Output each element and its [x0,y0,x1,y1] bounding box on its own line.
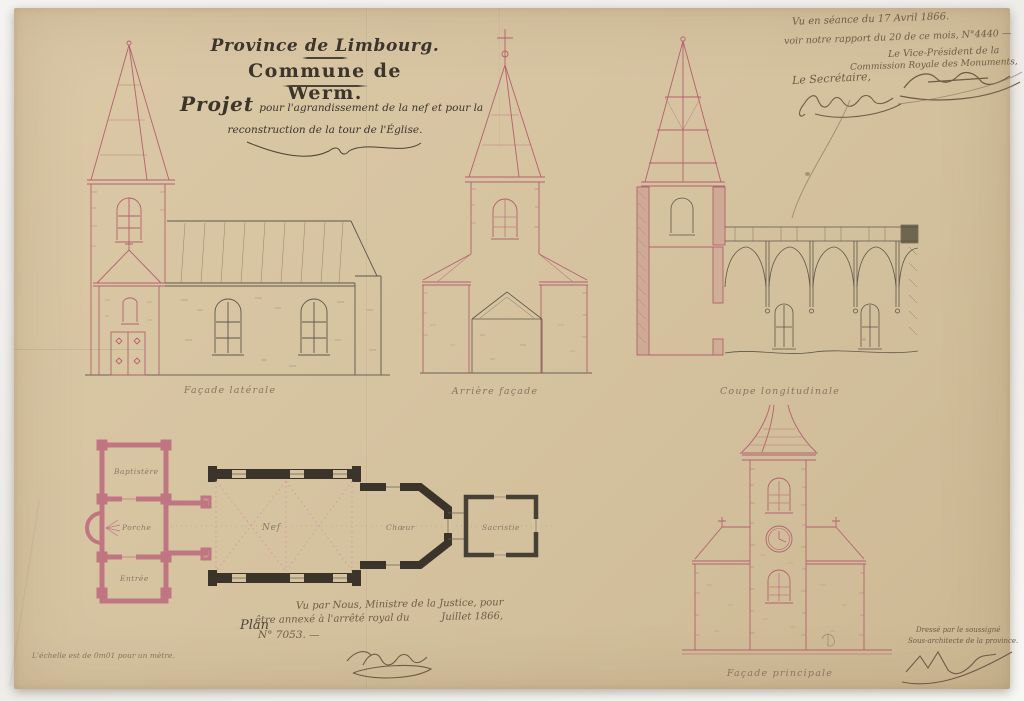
draftsman-signature [900,646,1015,692]
facade-principale-drawing [670,405,905,660]
floor-plan-drawing: Baptistère Porche Entrée Nef Chœur Sacri… [90,435,560,615]
coupe-longitudinale-drawing [635,35,920,385]
draftsman-note-line2: Sous-architecte de la province. [908,637,1018,645]
caption-facade-principale: Façade principale [700,668,860,679]
facade-laterale-drawing [85,40,395,380]
draftsman-note-line1: Dressé par le soussigné [916,626,1000,634]
plan-room-label-entree: Entrée [119,574,149,583]
plan-room-label-sacristie: Sacristie [482,523,520,532]
caption-facade-laterale: Façade latérale [150,385,310,396]
minister-note-line3: N° 7053. — [258,629,320,641]
caption-coupe-longitudinale: Coupe longitudinale [700,386,860,397]
plan-room-label-baptistere: Baptistère [113,467,159,476]
plan-room-label-porche: Porche [121,523,151,532]
plan-room-label-nef: Nef [261,523,282,533]
caption-arriere-facade: Arrière façade [420,386,570,397]
minister-signature [345,645,440,685]
scale-note: L'échelle est de 0m01 pour un mètre. [32,651,175,660]
plan-room-label-choeur: Chœur [386,523,415,532]
scanned-drawing-sheet: Province de Limbourg. Commune de Werm. P… [0,0,1024,701]
arriere-facade-drawing [420,25,615,380]
